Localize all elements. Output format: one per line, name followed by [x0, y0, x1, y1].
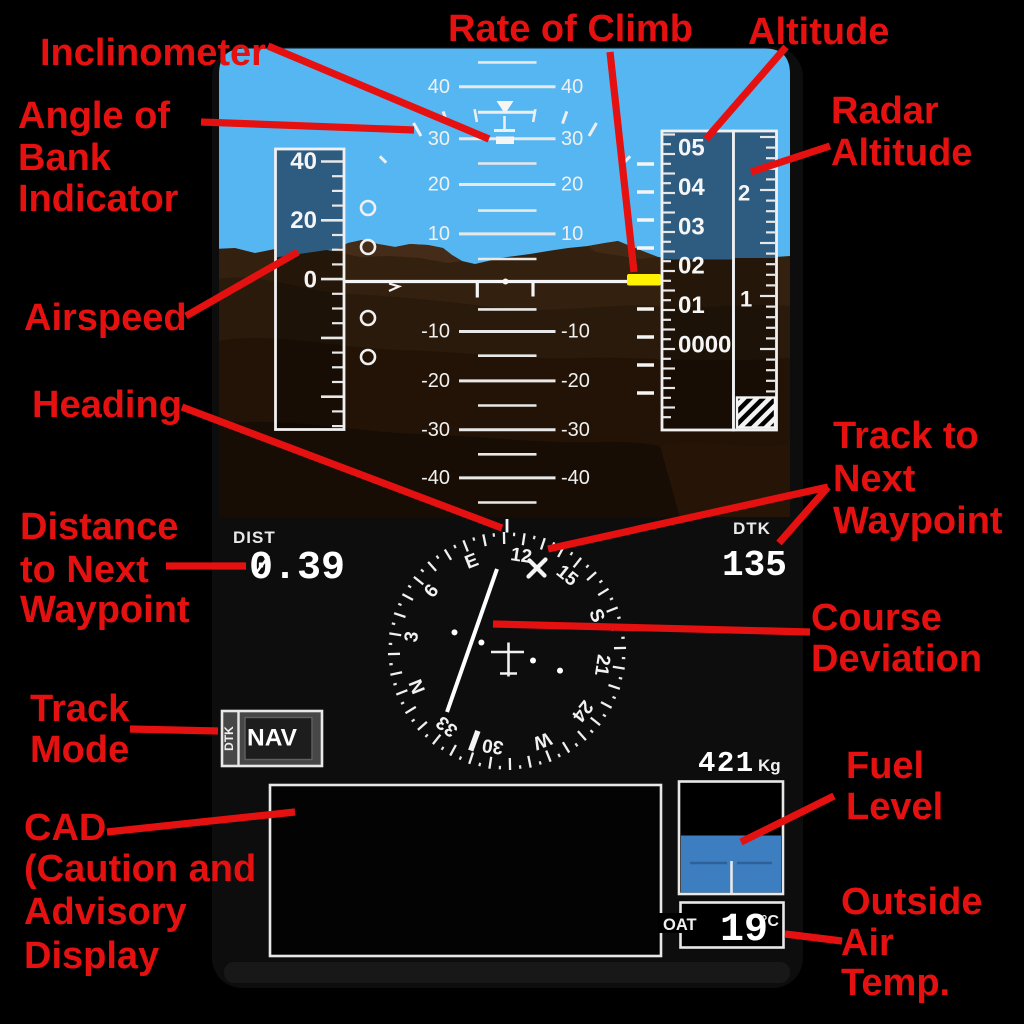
svg-text:Altitude: Altitude [831, 132, 972, 174]
svg-text:Rate of Climb: Rate of Climb [448, 8, 693, 50]
svg-text:40: 40 [290, 148, 317, 175]
svg-text:DIST: DIST [233, 528, 276, 547]
svg-text:21: 21 [590, 653, 614, 677]
svg-text:DTK: DTK [222, 726, 236, 751]
svg-text:01: 01 [678, 292, 705, 319]
svg-text:Advisory: Advisory [24, 891, 187, 933]
svg-text:-20: -20 [561, 370, 590, 392]
svg-text:Fuel: Fuel [846, 745, 924, 787]
svg-text:-40: -40 [421, 467, 450, 489]
svg-text:Angle of: Angle of [18, 95, 170, 137]
svg-text:Airspeed: Airspeed [24, 297, 187, 339]
svg-text:Waypoint: Waypoint [833, 500, 1003, 542]
svg-text:-10: -10 [421, 321, 450, 343]
svg-text:10: 10 [561, 223, 583, 245]
svg-text:30: 30 [428, 128, 450, 150]
svg-text:20: 20 [428, 174, 450, 196]
svg-text:421: 421 [698, 747, 755, 780]
svg-text:-10: -10 [561, 321, 590, 343]
svg-text:20: 20 [561, 174, 583, 196]
svg-text:°C: °C [761, 913, 779, 930]
svg-text:-30: -30 [561, 419, 590, 441]
svg-text:Radar: Radar [831, 90, 939, 132]
svg-text:Bank: Bank [18, 137, 112, 179]
svg-text:Distance: Distance [20, 506, 178, 548]
svg-text:2: 2 [738, 181, 750, 206]
svg-text:NAV: NAV [247, 725, 298, 752]
svg-text:20: 20 [290, 207, 317, 234]
svg-text:Indicator: Indicator [18, 178, 179, 220]
svg-text:Next: Next [833, 458, 916, 500]
svg-text:Inclinometer: Inclinometer [40, 32, 266, 74]
svg-text:Level: Level [846, 786, 943, 828]
svg-text:to Next: to Next [20, 549, 149, 591]
svg-text:02: 02 [678, 253, 705, 280]
svg-text:05: 05 [678, 135, 705, 162]
svg-text:135: 135 [722, 545, 787, 586]
svg-text:-30: -30 [421, 419, 450, 441]
svg-text:30: 30 [481, 734, 505, 758]
svg-text:Track: Track [30, 688, 130, 730]
svg-text:03: 03 [678, 213, 705, 240]
svg-text:CAD: CAD [24, 807, 106, 849]
svg-text:0: 0 [304, 267, 317, 294]
svg-text:Deviation: Deviation [811, 638, 982, 680]
svg-text:Track to: Track to [833, 415, 979, 457]
svg-text:Kg: Kg [758, 756, 781, 775]
svg-text:Heading: Heading [32, 384, 182, 426]
svg-text:Display: Display [24, 935, 159, 977]
svg-text:0000: 0000 [678, 332, 731, 359]
svg-text:Air: Air [841, 922, 894, 964]
svg-text:1: 1 [740, 287, 752, 312]
svg-text:Temp.: Temp. [841, 962, 950, 1004]
svg-text:DTK: DTK [733, 519, 771, 538]
svg-text:Altitude: Altitude [748, 11, 889, 53]
svg-text:40: 40 [428, 76, 450, 98]
svg-text:-20: -20 [421, 370, 450, 392]
svg-text:12: 12 [509, 544, 533, 568]
svg-text:40: 40 [561, 76, 583, 98]
svg-text:04: 04 [678, 174, 705, 201]
svg-text:10: 10 [428, 223, 450, 245]
svg-text:0.39: 0.39 [249, 546, 345, 591]
svg-text:Waypoint: Waypoint [20, 589, 190, 631]
svg-text:Mode: Mode [30, 729, 129, 771]
svg-text:Outside: Outside [841, 881, 982, 923]
svg-text:Course: Course [811, 597, 942, 639]
svg-text:30: 30 [561, 128, 583, 150]
svg-text:OAT: OAT [663, 916, 697, 934]
svg-text:-40: -40 [561, 467, 590, 489]
svg-text:(Caution and: (Caution and [24, 848, 256, 890]
